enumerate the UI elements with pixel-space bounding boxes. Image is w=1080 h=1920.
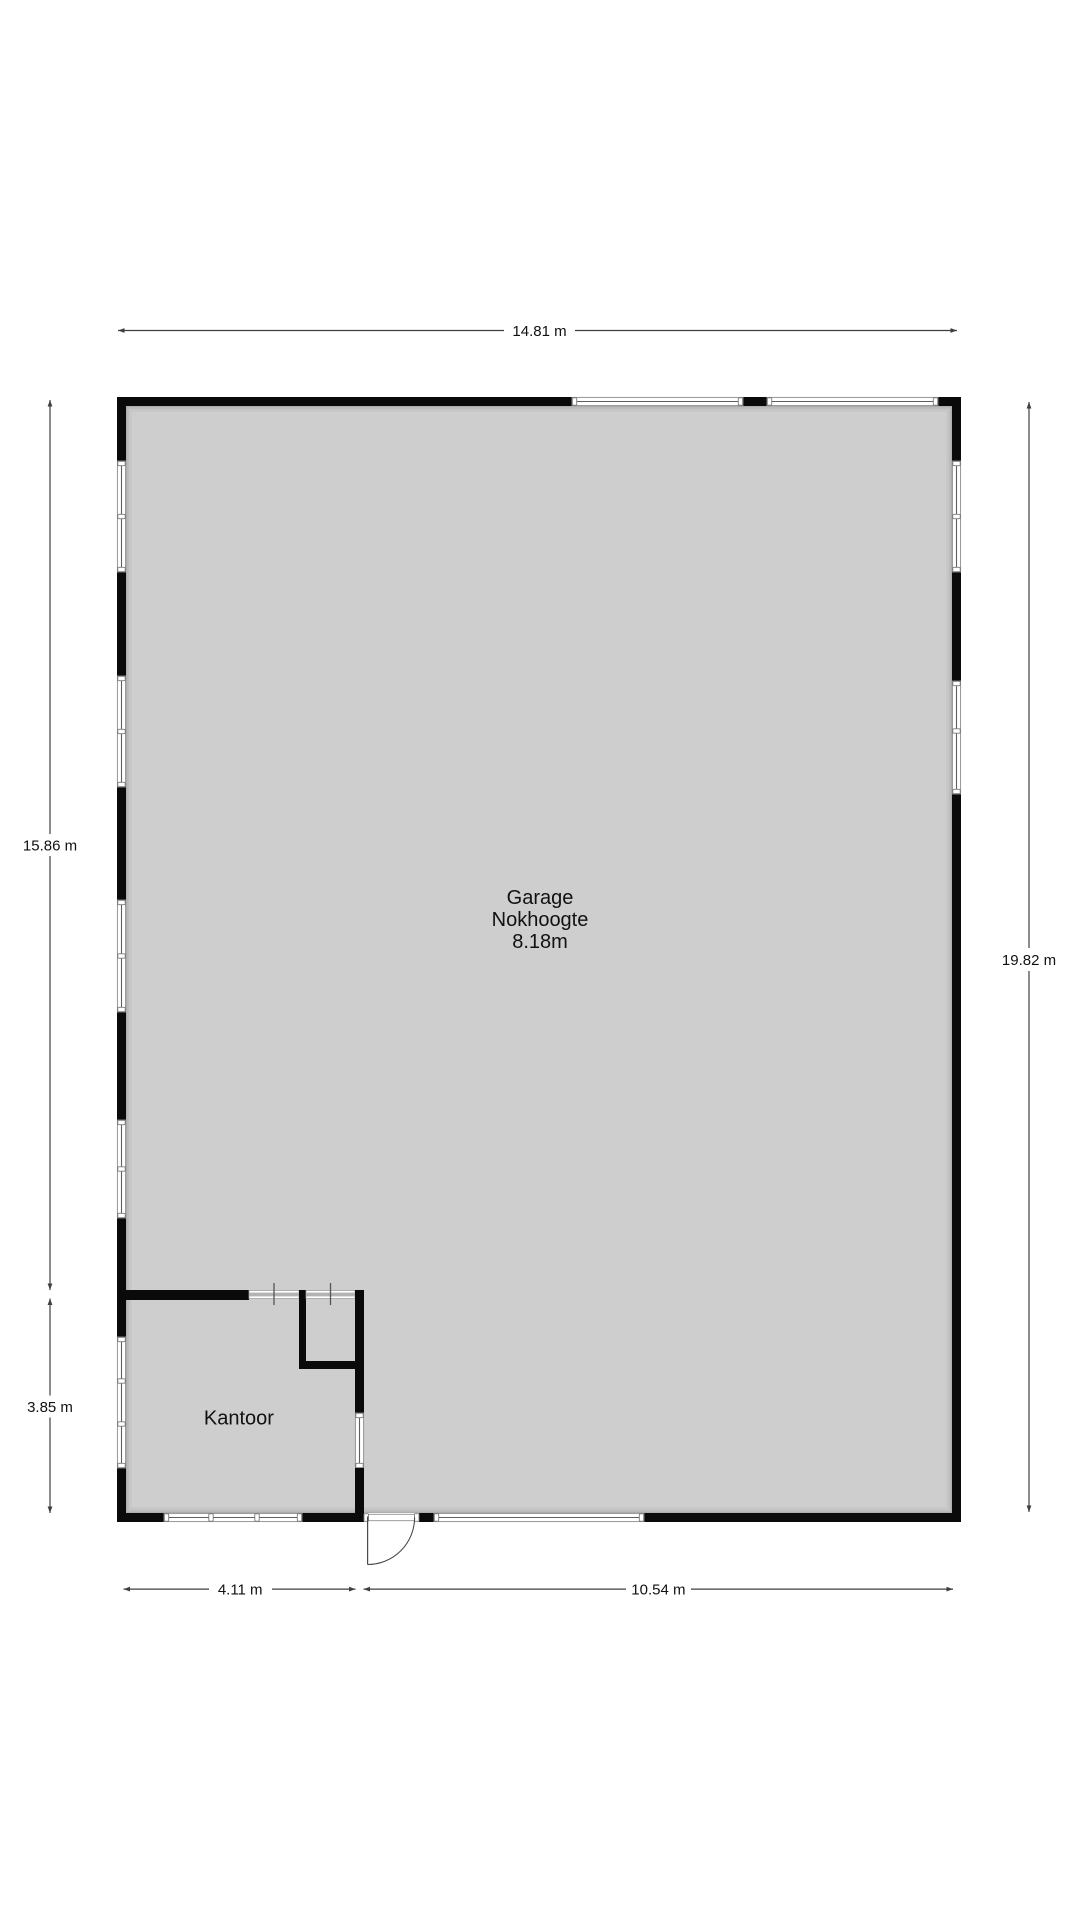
svg-text:10.54 m: 10.54 m: [631, 1582, 685, 1599]
svg-text:8.18m: 8.18m: [512, 931, 568, 953]
svg-text:Garage: Garage: [507, 887, 574, 909]
svg-text:Kantoor: Kantoor: [204, 1408, 274, 1430]
svg-text:19.82 m: 19.82 m: [1002, 952, 1056, 969]
svg-text:15.86 m: 15.86 m: [23, 838, 77, 855]
svg-text:14.81 m: 14.81 m: [512, 323, 566, 340]
svg-text:4.11 m: 4.11 m: [218, 1582, 263, 1599]
svg-text:Nokhoogte: Nokhoogte: [492, 909, 589, 931]
svg-text:3.85 m: 3.85 m: [27, 1399, 73, 1416]
